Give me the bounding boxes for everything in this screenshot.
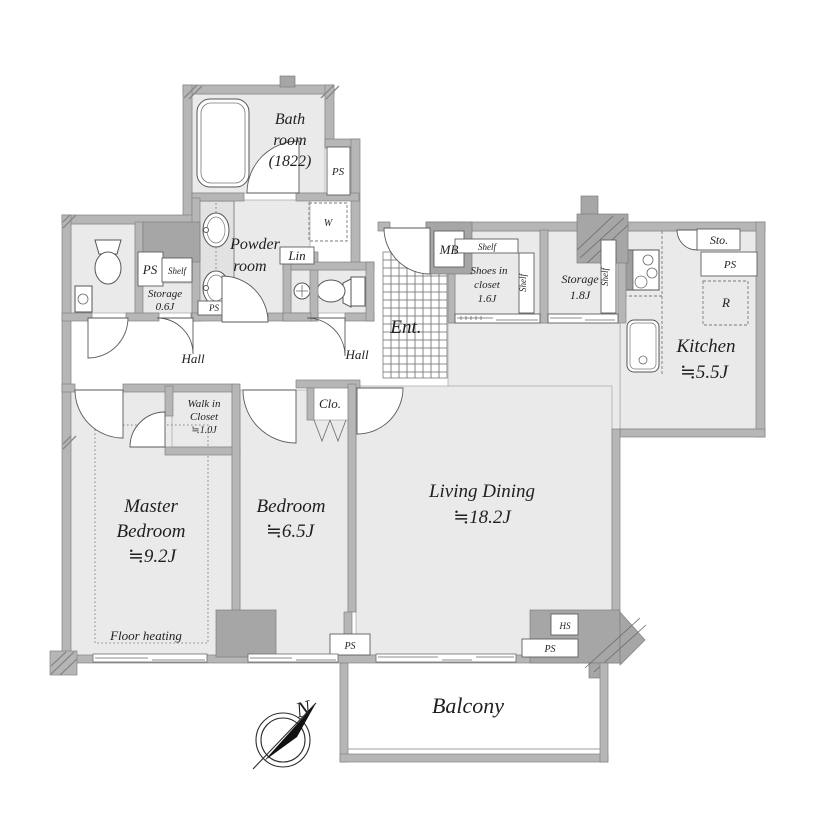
ps-label-powder: PS <box>208 303 219 313</box>
refrigerator-label: R <box>721 295 730 310</box>
bathtub <box>197 99 249 187</box>
shelf-label-storage-side: Shelf <box>600 267 610 286</box>
ps-label-bottom-right: PS <box>543 644 555 655</box>
walk-in-closet-label-3: ≒1.0J <box>191 425 217 436</box>
bath-room-label-2: room <box>273 132 306 149</box>
stove-icon <box>625 250 659 290</box>
walk-in-closet-label-2: Closet <box>190 411 219 423</box>
shoes-closet-label-1: Shoes in <box>471 265 508 277</box>
hs-label: HS <box>559 621 571 631</box>
floor-heating-label: Floor heating <box>109 628 182 643</box>
master-bedroom-size-label: ≒9.2J <box>128 546 178 567</box>
storage-small-label-2: 0.6J <box>156 301 176 313</box>
meter-box-label: MB <box>439 242 459 257</box>
shelf-label-shoes-side: Shelf <box>518 273 528 292</box>
storage-small-label-1: Storage <box>148 288 182 300</box>
ps-label-bottom-left: PS <box>343 641 355 652</box>
walk-in-closet-label-1: Walk in <box>188 398 221 410</box>
hall-label-right: Hall <box>344 347 369 362</box>
kitchen-label: Kitchen <box>675 336 735 357</box>
bath-room-label-3: (1822) <box>269 153 312 170</box>
closet-label: Clo. <box>319 396 341 411</box>
kitchen-size-label: ≒5.5J <box>680 362 730 383</box>
ps-label-bath: PS <box>331 166 345 178</box>
storage-small-door <box>157 318 193 354</box>
shelf-label-shoes-top: Shelf <box>478 242 497 252</box>
toilet-door <box>88 318 128 358</box>
living-dining-size-label: ≒18.2J <box>453 507 512 528</box>
ps-label-kitchen: PS <box>723 259 737 271</box>
ps-label-left: PS <box>142 262 158 277</box>
sto-label: Sto. <box>710 233 728 247</box>
linen-label: Lin <box>287 248 305 263</box>
entrance-label: Ent. <box>389 317 421 338</box>
powder-room-label-2: room <box>233 258 266 275</box>
storage-big-label-2: 1.8J <box>570 288 591 302</box>
powder-room-label-1: Powder <box>229 236 281 253</box>
sliding-doors <box>455 314 618 323</box>
shoes-closet-label-3: 1.6J <box>478 293 498 305</box>
master-bedroom-label-2: Bedroom <box>117 521 186 542</box>
bedroom-size-label: ≒6.5J <box>266 521 316 542</box>
shoes-closet-label-2: closet <box>474 279 501 291</box>
washer-label: W <box>324 218 334 229</box>
bath-room-label-1: Bath <box>275 111 305 128</box>
floor-plan-svg: N Bath room (1822) PS Powder room W Lin … <box>0 0 828 828</box>
windows <box>93 654 516 662</box>
toilet2-door <box>307 318 345 356</box>
shelf-label-left: Shelf <box>168 266 187 276</box>
kitchen-sink-icon <box>627 320 659 372</box>
bedroom-label: Bedroom <box>257 496 326 517</box>
hall-label-left: Hall <box>180 351 205 366</box>
living-dining-label: Living Dining <box>428 481 535 502</box>
balcony-label: Balcony <box>432 693 504 718</box>
floor-plan-canvas: N Bath room (1822) PS Powder room W Lin … <box>0 0 828 828</box>
master-bedroom-label-1: Master <box>123 496 178 517</box>
north-compass: N <box>253 694 316 769</box>
storage-big-label-1: Storage <box>561 272 599 286</box>
